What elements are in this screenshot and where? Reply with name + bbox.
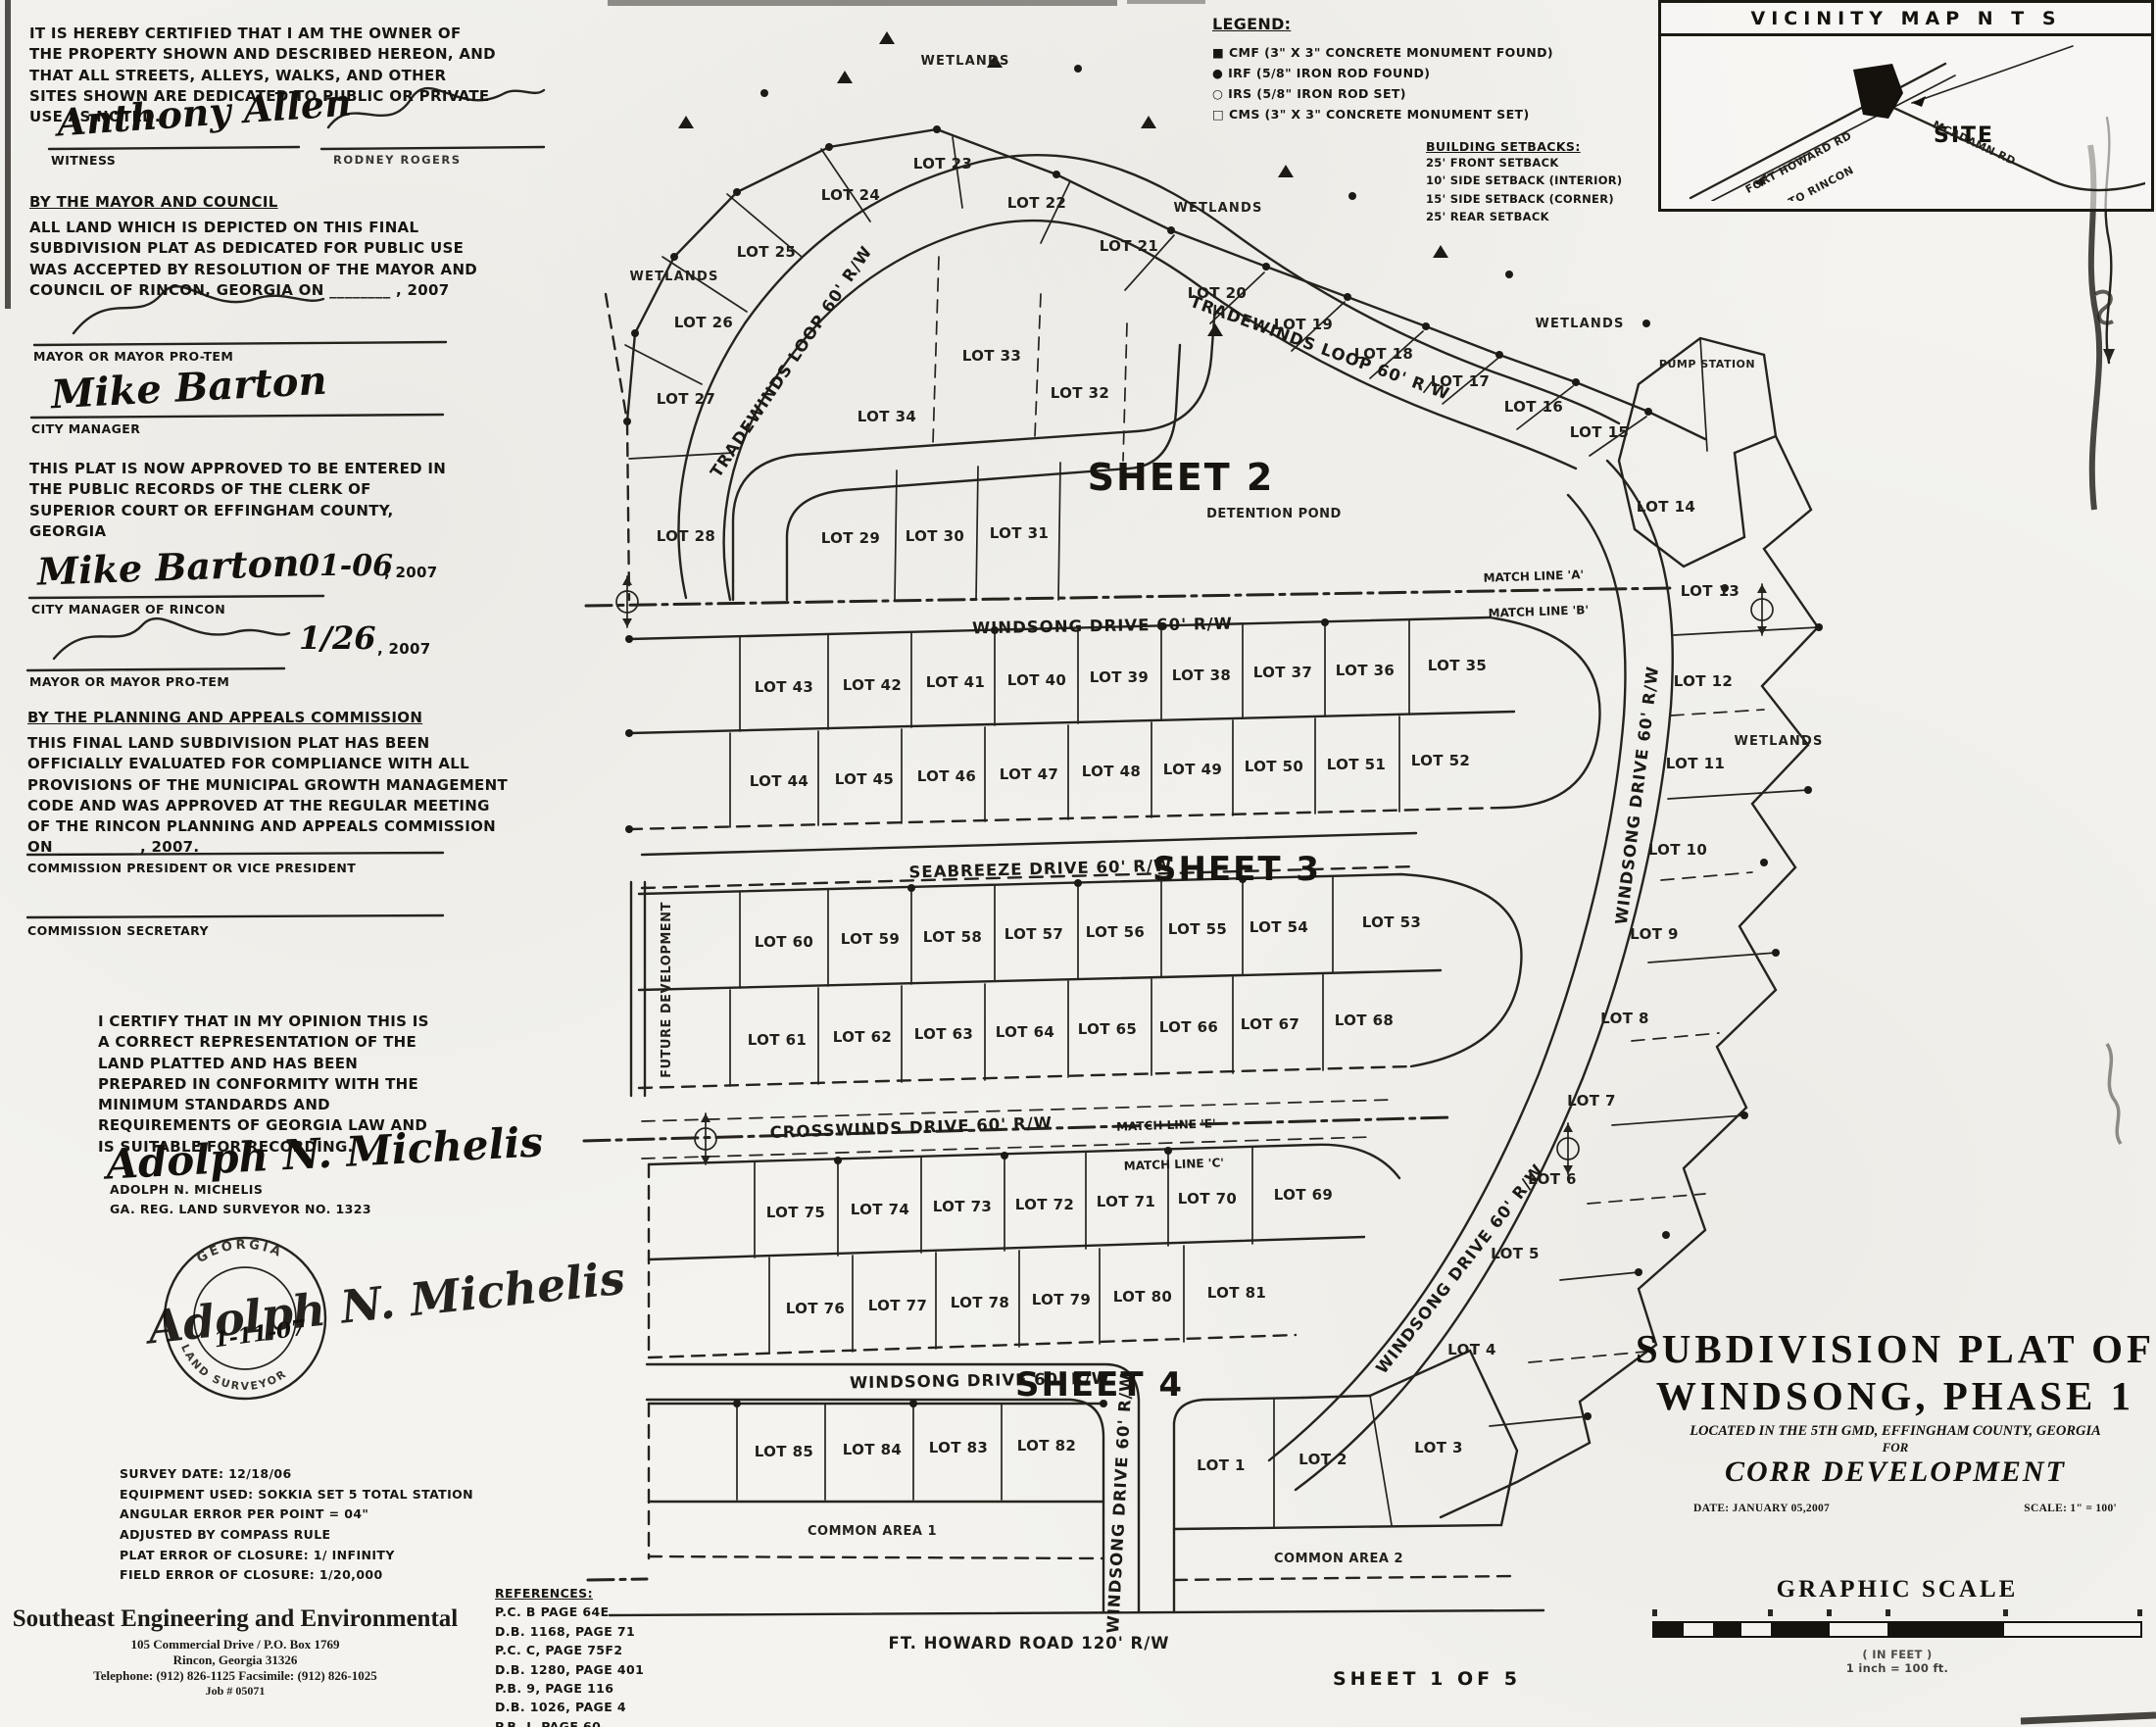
lot-label: LOT 27 bbox=[657, 390, 716, 408]
lot-label: LOT 4 bbox=[1447, 1341, 1496, 1358]
reference-item: P.B. J, PAGE 60 bbox=[495, 1717, 644, 1727]
lot-label: LOT 14 bbox=[1637, 498, 1696, 516]
lot-label: LOT 55 bbox=[1168, 920, 1228, 938]
mayor-council-heading: BY THE MAYOR AND COUNCIL bbox=[29, 192, 278, 213]
compass-icon bbox=[1751, 584, 1773, 635]
planning-text: THIS FINAL LAND SUBDIVISION PLAT HAS BEE… bbox=[27, 733, 508, 859]
surveyor-registration: GA. REG. LAND SURVEYOR NO. 1323 bbox=[110, 1202, 371, 1216]
legend-block: LEGEND: ■ CMF (3" X 3" CONCRETE MONUMENT… bbox=[1212, 14, 1553, 125]
street-label: WINDSONG DRIVE 60' R/W bbox=[972, 615, 1233, 638]
lot-label: LOT 79 bbox=[1032, 1291, 1092, 1308]
lot-label: LOT 70 bbox=[1178, 1190, 1238, 1208]
lot-label: LOT 81 bbox=[1207, 1284, 1267, 1302]
lot-label: LOT 51 bbox=[1327, 756, 1387, 773]
lot-label: LOT 31 bbox=[990, 524, 1050, 542]
lot-label: LOT 76 bbox=[786, 1300, 846, 1317]
wetlands-label: WETLANDS bbox=[1535, 317, 1624, 331]
clerk-role-label: CITY MANAGER OF RINCON bbox=[31, 602, 225, 617]
lot-label: LOT 44 bbox=[750, 772, 809, 790]
plat-date: DATE: JANUARY 05,2007 bbox=[1693, 1503, 1830, 1514]
lot-label: LOT 63 bbox=[914, 1025, 974, 1043]
lot-label: LOT 12 bbox=[1674, 672, 1734, 690]
lot-label: LOT 56 bbox=[1086, 923, 1146, 941]
lot-label: LOT 3 bbox=[1414, 1439, 1463, 1456]
references-block: REFERENCES: P.C. B PAGE 64E D.B. 1168, P… bbox=[495, 1584, 644, 1727]
lot-label: LOT 67 bbox=[1241, 1015, 1300, 1033]
witness-label: WITNESS bbox=[51, 153, 116, 168]
windsong-bottom-road bbox=[647, 1364, 1303, 1612]
setbacks-heading: BUILDING SETBACKS: bbox=[1426, 139, 1622, 154]
lot-label: LOT 61 bbox=[748, 1031, 808, 1049]
lot-label: LOT 26 bbox=[674, 314, 734, 331]
legend-item: ● IRF (5/8" IRON ROD FOUND) bbox=[1212, 63, 1553, 83]
rows-43-52-linework bbox=[629, 617, 1600, 829]
lot-label: LOT 15 bbox=[1570, 423, 1630, 441]
rows-69-81-linework bbox=[649, 1145, 1399, 1357]
match-line-label: MATCH LINE 'C' bbox=[1124, 1156, 1225, 1173]
cmf-monument-icon: ■ bbox=[1212, 45, 1224, 60]
mayor-line-label: MAYOR OR MAYOR PRO-TEM bbox=[33, 349, 233, 364]
clerk-year: , 2007 bbox=[384, 563, 437, 583]
street-label: TRADEWINDS LOOP 60' R/W bbox=[707, 242, 876, 480]
plat-scale: SCALE: 1" = 100' bbox=[2024, 1503, 2117, 1514]
match-line-a bbox=[586, 588, 1671, 606]
lot-label: LOT 39 bbox=[1090, 668, 1150, 686]
lot-label: LOT 6 bbox=[1528, 1170, 1577, 1188]
planning-heading: BY THE PLANNING AND APPEALS COMMISSION bbox=[27, 708, 422, 728]
survey-info-line: PLAT ERROR OF CLOSURE: 1/ INFINITY bbox=[120, 1546, 473, 1566]
firm-block: Southeast Engineering and Environmental … bbox=[0, 1605, 470, 1699]
owner-signature-label: RODNEY ROGERS bbox=[333, 153, 462, 167]
match-line-label: MATCH LINE 'E' bbox=[1116, 1116, 1216, 1134]
sheet3-label: SHEET 3 bbox=[1152, 850, 1321, 889]
lot-label: LOT 72 bbox=[1015, 1196, 1075, 1213]
clerk-signature: Mike Barton bbox=[36, 540, 300, 593]
lot-label: LOT 80 bbox=[1113, 1288, 1173, 1306]
rows-53-68-linework bbox=[631, 874, 1521, 1096]
lot-label: LOT 16 bbox=[1504, 398, 1564, 416]
match-line-label: MATCH LINE 'B' bbox=[1488, 603, 1589, 620]
reference-item: D.B. 1168, PAGE 71 bbox=[495, 1622, 644, 1641]
lot-label: LOT 53 bbox=[1362, 913, 1422, 931]
lot-label: LOT 2 bbox=[1298, 1451, 1347, 1468]
legend-item: ■ CMF (3" X 3" CONCRETE MONUMENT FOUND) bbox=[1212, 42, 1553, 63]
lot-label: LOT 64 bbox=[996, 1023, 1055, 1041]
lot-label: LOT 21 bbox=[1100, 237, 1159, 255]
lot-label: LOT 30 bbox=[906, 527, 965, 545]
lot-label: LOT 13 bbox=[1681, 582, 1740, 600]
lot-label: LOT 5 bbox=[1491, 1245, 1540, 1262]
lot-label: LOT 10 bbox=[1648, 841, 1708, 859]
lot-label: LOT 62 bbox=[833, 1028, 893, 1046]
wetlands-label: WETLANDS bbox=[1173, 201, 1262, 216]
lot-label: LOT 42 bbox=[843, 676, 903, 694]
lot-label: LOT 24 bbox=[821, 186, 881, 204]
lot-label: LOT 25 bbox=[737, 243, 797, 261]
survey-info-line: ANGULAR ERROR PER POINT = 04" bbox=[120, 1505, 473, 1525]
street-label: CROSSWINDS DRIVE 60' R/W bbox=[769, 1113, 1053, 1142]
wetlands-label: WETLANDS bbox=[920, 54, 1009, 69]
lot-label: LOT 59 bbox=[841, 930, 901, 948]
street-label: WINDSONG DRIVE 60' R/W bbox=[1612, 665, 1662, 925]
lot-label: LOT 73 bbox=[933, 1198, 993, 1215]
lot-label: LOT 20 bbox=[1188, 284, 1248, 302]
lot-label: LOT 47 bbox=[1000, 765, 1059, 783]
lot-label: LOT 40 bbox=[1007, 671, 1067, 689]
lot-label: LOT 84 bbox=[843, 1441, 903, 1458]
lot-label: LOT 75 bbox=[766, 1204, 826, 1221]
scale-in-feet: ( IN FEET ) bbox=[1639, 1648, 2156, 1661]
lot-label: LOT 66 bbox=[1159, 1018, 1219, 1036]
lot-label: LOT 17 bbox=[1431, 372, 1491, 390]
legend-item-text: CMS (3" X 3" CONCRETE MONUMENT SET) bbox=[1229, 107, 1530, 122]
lot-label: LOT 43 bbox=[755, 678, 814, 696]
clerk-date: 01-06 bbox=[299, 549, 393, 583]
street-label: SEABREEZE DRIVE 60' R/W bbox=[908, 856, 1172, 881]
lot-label: LOT 50 bbox=[1245, 758, 1304, 775]
sheet4-label: SHEET 4 bbox=[1015, 1365, 1184, 1405]
detention-pond-label: DETENTION POND bbox=[1206, 507, 1342, 521]
lot-label: LOT 49 bbox=[1163, 761, 1223, 778]
windsong-right-road bbox=[1269, 461, 1673, 1490]
plat-location-line: LOCATED IN THE 5TH GMD, EFFINGHAM COUNTY… bbox=[1635, 1423, 2156, 1440]
lot-label: LOT 57 bbox=[1004, 925, 1064, 943]
vicinity-map-title: VICINITY MAP N T S bbox=[1661, 3, 2151, 36]
city-manager-label: CITY MANAGER bbox=[31, 421, 140, 436]
legend-item-text: IRF (5/8" IRON ROD FOUND) bbox=[1228, 66, 1430, 80]
scale-bar bbox=[1652, 1621, 2142, 1638]
lot-label: LOT 85 bbox=[755, 1443, 814, 1460]
plat-title-line1: SUBDIVISION PLAT OF bbox=[1635, 1325, 2156, 1372]
lot-label: LOT 35 bbox=[1428, 657, 1488, 674]
lot-label: LOT 22 bbox=[1007, 194, 1067, 212]
lot-label: LOT 78 bbox=[951, 1294, 1010, 1311]
lot-label: LOT 37 bbox=[1253, 664, 1313, 681]
mayor-council-text: ALL LAND WHICH IS DEPICTED ON THIS FINAL… bbox=[29, 218, 498, 301]
lot-label: LOT 38 bbox=[1172, 666, 1232, 684]
irs-rod-icon: ○ bbox=[1212, 86, 1223, 101]
pump-station-label: PUMP STATION bbox=[1659, 358, 1755, 370]
reference-item: P.C. C, PAGE 75F2 bbox=[495, 1641, 644, 1659]
firm-name: Southeast Engineering and Environmental bbox=[0, 1605, 470, 1633]
firm-job-number: Job # 05071 bbox=[0, 1684, 470, 1699]
lot-label: LOT 8 bbox=[1600, 1010, 1649, 1027]
match-line-label: MATCH LINE 'A' bbox=[1483, 567, 1584, 585]
survey-info-line: SURVEY DATE: 12/18/06 bbox=[120, 1464, 473, 1485]
lot-label: LOT 36 bbox=[1336, 662, 1396, 679]
plat-for-line: FOR bbox=[1635, 1440, 2156, 1456]
lot-label: LOT 9 bbox=[1630, 925, 1679, 943]
surveyor-name: ADOLPH N. MICHELIS bbox=[110, 1182, 263, 1197]
lot-label: LOT 23 bbox=[913, 155, 973, 173]
lot-label: LOT 19 bbox=[1274, 316, 1334, 333]
vicinity-map-drawing: SITE FORT HOWARD RD TO RINCON MCADAMN RD bbox=[1661, 36, 2145, 201]
graphic-scale-block: GRAPHIC SCALE ( IN FEET ) 1 inch = 100 f… bbox=[1639, 1576, 2156, 1675]
firm-phone: Telephone: (912) 826-1125 Facsimile: (91… bbox=[0, 1668, 470, 1684]
lot-label: LOT 7 bbox=[1567, 1092, 1616, 1110]
clerk-approval-text: THIS PLAT IS NOW APPROVED TO BE ENTERED … bbox=[29, 459, 461, 542]
title-block: SUBDIVISION PLAT OF WINDSONG, PHASE 1 LO… bbox=[1635, 1325, 2156, 1514]
mayor2-role-label: MAYOR OR MAYOR PRO-TEM bbox=[29, 674, 229, 689]
lot-label: LOT 60 bbox=[755, 933, 814, 951]
lot-label: LOT 48 bbox=[1082, 763, 1142, 780]
legend-heading: LEGEND: bbox=[1212, 14, 1553, 36]
lot-label: LOT 33 bbox=[962, 347, 1022, 365]
scale-ratio: 1 inch = 100 ft. bbox=[1639, 1661, 2156, 1675]
developer-name: CORR DEVELOPMENT bbox=[1635, 1456, 2156, 1489]
ft-howard-road bbox=[588, 1579, 1543, 1615]
legend-item-text: IRS (5/8" IRON ROD SET) bbox=[1228, 86, 1406, 101]
setback-item: 10' SIDE SETBACK (INTERIOR) bbox=[1426, 172, 1622, 189]
lot-label: LOT 29 bbox=[821, 529, 881, 547]
lot-label: LOT 18 bbox=[1354, 345, 1414, 363]
lot-label: LOT 52 bbox=[1411, 752, 1471, 769]
graphic-scale-title: GRAPHIC SCALE bbox=[1639, 1576, 2156, 1604]
survey-info-block: SURVEY DATE: 12/18/06 EQUIPMENT USED: SO… bbox=[120, 1464, 473, 1586]
lot-label: LOT 41 bbox=[926, 673, 986, 691]
lot-label: LOT 54 bbox=[1249, 918, 1309, 936]
legend-item: ○ IRS (5/8" IRON ROD SET) bbox=[1212, 83, 1553, 104]
site-area-shape bbox=[1853, 64, 1903, 119]
setback-item: 25' FRONT SETBACK bbox=[1426, 154, 1622, 172]
lot-label: LOT 65 bbox=[1078, 1020, 1138, 1038]
firm-address1: 105 Commercial Drive / P.O. Box 1769 bbox=[0, 1637, 470, 1653]
lot-label: LOT 58 bbox=[923, 928, 983, 946]
lot-label: LOT 28 bbox=[657, 527, 716, 545]
common-area2-label: COMMON AREA 2 bbox=[1274, 1552, 1403, 1566]
survey-info-line: ADJUSTED BY COMPASS RULE bbox=[120, 1525, 473, 1546]
setbacks-block: BUILDING SETBACKS: 25' FRONT SETBACK 10'… bbox=[1426, 139, 1622, 226]
reference-item: P.C. B PAGE 64E bbox=[495, 1603, 644, 1621]
survey-info-line: FIELD ERROR OF CLOSURE: 1/20,000 bbox=[120, 1565, 473, 1586]
setback-item: 25' REAR SETBACK bbox=[1426, 208, 1622, 225]
commission-secretary-label: COMMISSION SECRETARY bbox=[27, 923, 209, 938]
lot-label: LOT 77 bbox=[868, 1297, 928, 1314]
sheet-footer-label: SHEET 1 OF 5 bbox=[1333, 1666, 1521, 1693]
mayor2-year: , 2007 bbox=[377, 639, 430, 660]
lot-label: LOT 74 bbox=[851, 1201, 910, 1218]
vicinity-map: VICINITY MAP N T S SITE FORT HOWARD RD T… bbox=[1658, 0, 2154, 212]
survey-info-line: EQUIPMENT USED: SOKKIA SET 5 TOTAL STATI… bbox=[120, 1485, 473, 1505]
street-label: FT. HOWARD ROAD 120' R/W bbox=[889, 1634, 1170, 1653]
reference-item: D.B. 1280, PAGE 401 bbox=[495, 1660, 644, 1679]
lot-label: LOT 46 bbox=[917, 767, 977, 785]
lot-label: LOT 68 bbox=[1335, 1012, 1395, 1029]
legend-item: □ CMS (3" X 3" CONCRETE MONUMENT SET) bbox=[1212, 104, 1553, 124]
sheet2-label: SHEET 2 bbox=[1088, 456, 1275, 499]
reference-item: D.B. 1026, PAGE 4 bbox=[495, 1698, 644, 1716]
common-area1-label: COMMON AREA 1 bbox=[808, 1524, 937, 1539]
lot-label: LOT 82 bbox=[1017, 1437, 1077, 1455]
irf-rod-icon: ● bbox=[1212, 66, 1223, 80]
plat-document-page: TRADEWINDS LOOP 60' R/W TRADEWINDS LOOP … bbox=[0, 0, 2156, 1727]
reference-item: P.B. 9, PAGE 116 bbox=[495, 1679, 644, 1698]
wetlands-label: WETLANDS bbox=[629, 270, 718, 284]
cms-monument-icon: □ bbox=[1212, 107, 1224, 122]
compass-icon bbox=[616, 576, 638, 627]
plat-title-line2: WINDSONG, PHASE 1 bbox=[1635, 1372, 2156, 1419]
commission-president-label: COMMISSION PRESIDENT OR VICE PRESIDENT bbox=[27, 861, 356, 875]
lot-label: LOT 11 bbox=[1666, 755, 1726, 772]
firm-address2: Rincon, Georgia 31326 bbox=[0, 1653, 470, 1668]
wetlands-label: WETLANDS bbox=[1734, 734, 1823, 749]
mayor2-date: 1/26 bbox=[299, 619, 375, 657]
future-development-label: FUTURE DEVELOPMENT bbox=[660, 902, 674, 1078]
legend-item-text: CMF (3" X 3" CONCRETE MONUMENT FOUND) bbox=[1229, 45, 1553, 60]
lot-label: LOT 1 bbox=[1197, 1456, 1246, 1474]
lot-label: LOT 32 bbox=[1051, 384, 1110, 402]
lot-label: LOT 45 bbox=[835, 770, 895, 788]
street-label: WINDSONG DRIVE 60' R/W bbox=[1103, 1372, 1136, 1634]
lot-label: LOT 69 bbox=[1274, 1186, 1334, 1204]
lot-label: LOT 71 bbox=[1097, 1193, 1156, 1210]
setback-item: 15' SIDE SETBACK (CORNER) bbox=[1426, 190, 1622, 208]
references-heading: REFERENCES: bbox=[495, 1584, 644, 1603]
lot-label: LOT 34 bbox=[857, 408, 917, 425]
lot-label: LOT 83 bbox=[929, 1439, 989, 1456]
